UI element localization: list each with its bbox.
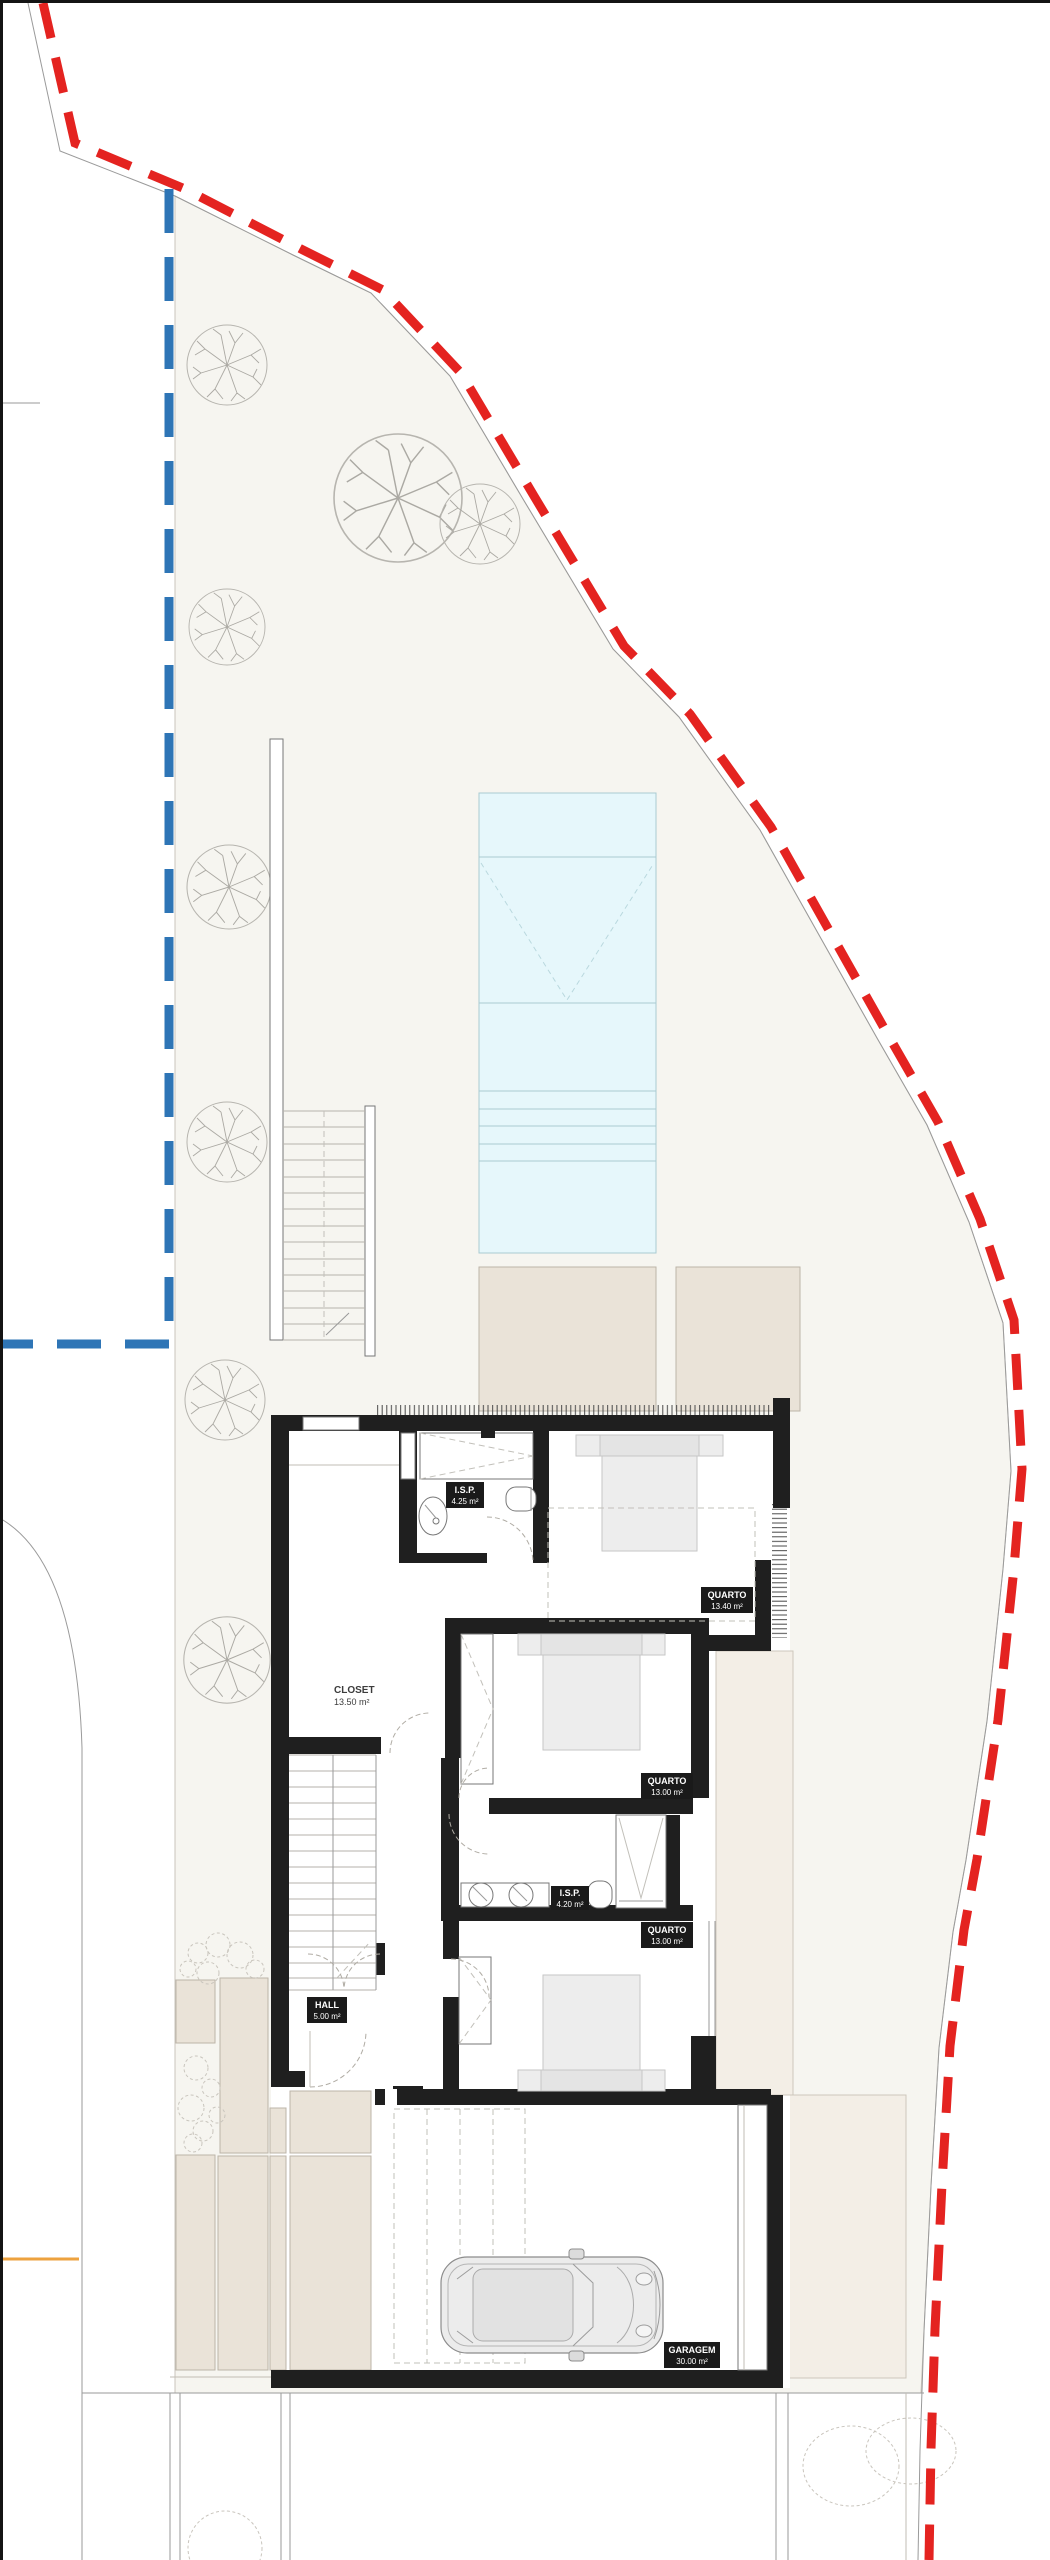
room-label-quarto3: QUARTO 13.00 m² [641,1922,693,1948]
svg-text:I.S.P.: I.S.P. [560,1888,581,1898]
window-hatch-right [772,1503,787,1638]
svg-text:13.40 m²: 13.40 m² [711,1602,743,1611]
floor-plan-drawing: QUARTO 13.40 m² I.S.P. 4.25 m² CLOSET 13… [3,3,1050,2560]
bush [803,2426,899,2506]
svg-text:I.S.P.: I.S.P. [455,1485,476,1495]
svg-text:13.00 m²: 13.00 m² [651,1788,683,1797]
room-label-quarto2: QUARTO 13.00 m² [641,1773,693,1799]
svg-text:QUARTO: QUARTO [648,1776,687,1786]
svg-text:CLOSET: CLOSET [334,1685,375,1696]
car [441,2249,663,2361]
svg-text:QUARTO: QUARTO [648,1925,687,1935]
svg-text:13.00 m²: 13.00 m² [651,1937,683,1946]
svg-text:13.50 m²: 13.50 m² [334,1697,370,1707]
svg-text:GARAGEM: GARAGEM [669,2345,716,2355]
swimming-pool [479,793,656,1253]
terrace [783,2095,906,2378]
room-label-isp2: I.S.P. 4.20 m² [551,1886,589,1910]
room-label-quarto1: QUARTO 13.40 m² [701,1587,753,1613]
svg-text:HALL: HALL [315,2000,339,2010]
room-label-garagem: GARAGEM 30.00 m² [664,2342,720,2368]
window-hatch-top [377,1405,771,1416]
svg-text:QUARTO: QUARTO [708,1590,747,1600]
svg-text:5.00 m²: 5.00 m² [313,2012,340,2021]
svg-text:4.25 m²: 4.25 m² [451,1497,478,1506]
bush [188,2511,262,2560]
room-label-isp1: I.S.P. 4.25 m² [446,1482,484,1508]
blue-setback-line [3,189,169,1344]
room-label-hall: HALL 5.00 m² [307,1997,347,2023]
svg-text:4.20 m²: 4.20 m² [556,1900,583,1909]
bush [866,2418,956,2484]
wardrobe [461,1634,493,1784]
floor-plan-canvas: QUARTO 13.40 m² I.S.P. 4.25 m² CLOSET 13… [0,0,1050,2560]
wardrobe [459,1957,491,2044]
svg-text:30.00 m²: 30.00 m² [676,2357,708,2366]
